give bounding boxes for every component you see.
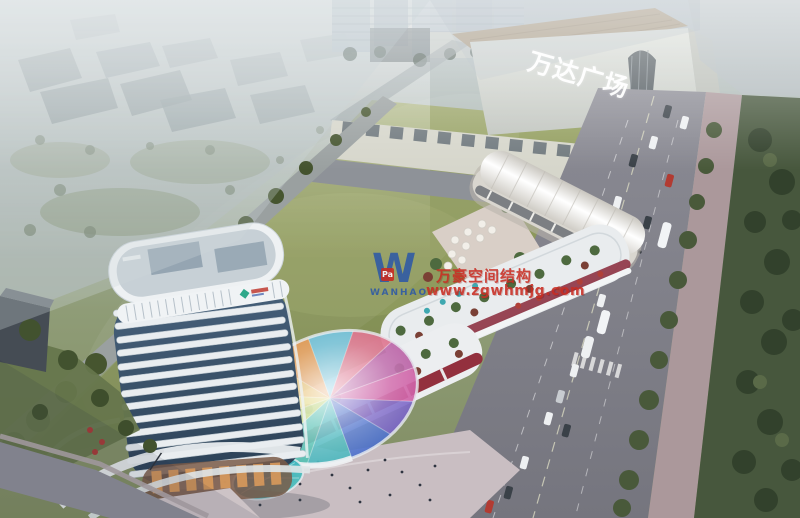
architectural-rendering: 万达广场 W Pa WANHAO 万豪空间结构 www.zgwhmjg.com [0, 0, 800, 518]
watermark-company-en: WANHAO [370, 288, 428, 298]
watermark-url: www.zgwhmjg.com [426, 283, 585, 299]
watermark: W Pa WANHAO 万豪空间结构 www.zgwhmjg.com [368, 250, 578, 312]
watermark-logo-badge: Pa [381, 268, 394, 281]
